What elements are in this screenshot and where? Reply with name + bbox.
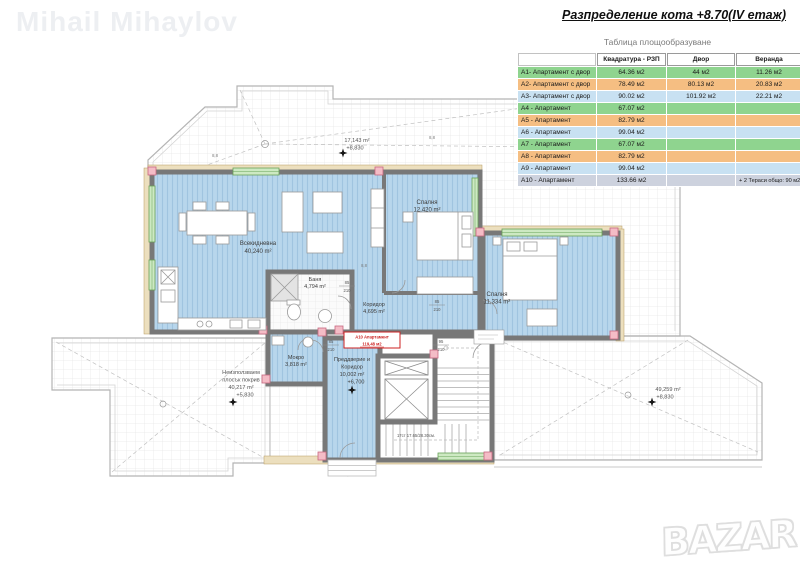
table-row: A6 - Апартамент 99.04 м2 bbox=[518, 127, 800, 138]
detail-stamp bbox=[474, 330, 504, 344]
table-row: A9 - Апартамент 99.04 м2 bbox=[518, 163, 800, 174]
rzp-value: 99.04 м2 bbox=[597, 127, 666, 138]
veranda-value bbox=[736, 103, 800, 114]
elevator-shaft bbox=[378, 356, 435, 422]
door-height: 210 bbox=[344, 288, 352, 293]
dvor-value bbox=[667, 127, 735, 138]
dvor-value: 101.92 м2 bbox=[667, 91, 735, 102]
rzp-value: 67.07 м2 bbox=[597, 103, 666, 114]
dvor-value: 80.13 м2 bbox=[667, 79, 735, 90]
bath-name: Баня bbox=[309, 277, 322, 283]
veranda-value: 22.21 м2 bbox=[736, 91, 800, 102]
top-terrace-level: +8,830 bbox=[346, 146, 363, 152]
dvor-value bbox=[667, 103, 735, 114]
wardrobe bbox=[371, 189, 384, 247]
section-mark: 8,8 bbox=[361, 263, 367, 268]
author-watermark: Mihail Mihaylov bbox=[16, 6, 238, 38]
living-area: 40,240 m² bbox=[244, 249, 271, 255]
door-width: 85 bbox=[435, 299, 440, 304]
rzp-value: 133.66 м2 bbox=[597, 175, 666, 186]
left-terrace-line2: плосък покрив bbox=[222, 378, 260, 384]
bedroom1-area: 12,420 m² bbox=[413, 208, 440, 214]
table-row: A4 - Апартамент 67.07 м2 bbox=[518, 103, 800, 114]
stamp-line2: 119,48 м2 bbox=[362, 342, 382, 347]
door-height: 210 bbox=[438, 347, 446, 352]
hall-level: +6,700 bbox=[348, 380, 365, 386]
rzp-value: 82.79 м2 bbox=[597, 151, 666, 162]
sofa bbox=[282, 192, 303, 232]
apartment-a10-stamp: А10 Апартамент 119,48 м2 bbox=[344, 332, 400, 348]
table-row: A8 - Апартамент 82.79 м2 bbox=[518, 151, 800, 162]
wardrobe bbox=[417, 277, 473, 294]
table-header-row: Квадратура - РЗП Двор Веранда bbox=[518, 53, 800, 66]
mokro-name: Мокро bbox=[288, 355, 304, 361]
door-width: 85 bbox=[329, 339, 334, 344]
sofa bbox=[313, 192, 342, 213]
veranda-value bbox=[736, 115, 800, 126]
apartment-label: A10 - Апартамент bbox=[518, 175, 596, 186]
apartment-label: A2- Апартамент с двор bbox=[518, 79, 596, 90]
bazar-logo: BAZAR bbox=[661, 511, 796, 564]
door-height: 210 bbox=[434, 307, 442, 312]
door-height: 210 bbox=[328, 347, 336, 352]
floor-plan-page: Mihail Mihaylov Разпределение кота +8.70… bbox=[0, 0, 800, 566]
rzp-value: 90.02 м2 bbox=[597, 91, 666, 102]
bedroom1-name: Спалня bbox=[417, 200, 438, 206]
entrance-stoop bbox=[328, 460, 376, 476]
veranda-value: 20.83 м2 bbox=[736, 79, 800, 90]
dvor-value bbox=[667, 151, 735, 162]
dvor-value: 44 м2 bbox=[667, 67, 735, 78]
sink bbox=[319, 310, 332, 323]
veranda-value bbox=[736, 127, 800, 138]
living-name: Всекидневна bbox=[240, 241, 277, 247]
table-caption: Таблица площообразуване bbox=[517, 37, 798, 47]
rzp-value: 78.49 м2 bbox=[597, 79, 666, 90]
hall-name2: Коридор bbox=[341, 365, 363, 371]
apartment-label: A6 - Апартамент bbox=[518, 127, 596, 138]
bath-area: 4,794 m² bbox=[304, 284, 326, 290]
table-row: A7 - Апартамент 67.07 м2 bbox=[518, 139, 800, 150]
rzp-value: 67.07 м2 bbox=[597, 139, 666, 150]
dvor-value bbox=[667, 139, 735, 150]
apartment-label: A4 - Апартамент bbox=[518, 103, 596, 114]
stairs-note: 17ст 17.65/28.30см. bbox=[397, 433, 435, 438]
rzp-value: 82.79 м2 bbox=[597, 115, 666, 126]
table-row: A5 - Апартамент 82.79 м2 bbox=[518, 115, 800, 126]
table-row: A1- Апартамент с двор 64.36 м2 44 м2 11.… bbox=[518, 67, 800, 78]
mokro-area: 3,818 m² bbox=[285, 362, 307, 368]
apartment-label: A5 - Апартамент bbox=[518, 115, 596, 126]
right-terrace-area: 49,259 m² bbox=[655, 387, 680, 393]
top-terrace-area: 17,143 m² bbox=[344, 138, 369, 144]
left-terrace-area: 40,217 m² bbox=[228, 385, 253, 391]
table-row: A3- Апартамент с двор 90.02 м2 101.92 м2… bbox=[518, 91, 800, 102]
header-dvor: Двор bbox=[667, 53, 735, 66]
door-width: 95 bbox=[439, 339, 444, 344]
hall-name1: Преддверие и bbox=[334, 357, 370, 363]
rzp-value: 99.04 м2 bbox=[597, 163, 666, 174]
page-title: Разпределение кота +8.70(IV етаж) bbox=[548, 8, 800, 22]
header-rzp: Квадратура - РЗП bbox=[597, 53, 666, 66]
apartment-label: A9 - Апартамент bbox=[518, 163, 596, 174]
stamp-line1: А10 Апартамент bbox=[355, 335, 389, 340]
right-terrace-level: +8,830 bbox=[656, 395, 673, 401]
header-veranda: Веранда bbox=[736, 53, 800, 66]
rzp-value: 64.36 м2 bbox=[597, 67, 666, 78]
toilet bbox=[288, 304, 301, 320]
veranda-value: 11.26 м2 bbox=[736, 67, 800, 78]
apartment-label: A8 - Апартамент bbox=[518, 151, 596, 162]
right-roof-terrace bbox=[494, 336, 762, 467]
veranda-value bbox=[736, 151, 800, 162]
hall-area: 10,002 m² bbox=[340, 372, 365, 378]
dvor-value bbox=[667, 163, 735, 174]
dvor-value bbox=[667, 115, 735, 126]
veranda-value bbox=[736, 139, 800, 150]
table-row: A2- Апартамент с двор 78.49 м2 80.13 м2 … bbox=[518, 79, 800, 90]
veranda-value bbox=[736, 163, 800, 174]
dining-table bbox=[187, 211, 247, 235]
apartment-label: A1- Апартамент с двор bbox=[518, 67, 596, 78]
left-terrace-line1: Неизползваем bbox=[222, 370, 260, 376]
apartment-label: A3- Апартамент с двор bbox=[518, 91, 596, 102]
section-mark: 8,8 bbox=[212, 153, 218, 158]
apartment-label: A7 - Апартамент bbox=[518, 139, 596, 150]
corridor-name: Коридор bbox=[363, 302, 385, 308]
header-blank bbox=[518, 53, 596, 66]
bedroom2-area: 11,334 m² bbox=[484, 300, 511, 306]
bedroom2-name: Спалня bbox=[487, 292, 508, 298]
boiler bbox=[303, 337, 313, 347]
section-mark: 8,8 bbox=[429, 135, 435, 140]
dvor-value bbox=[667, 175, 735, 186]
veranda-note: + 2 Тераси общо: 90 м2 bbox=[736, 175, 800, 186]
area-table: Квадратура - РЗП Двор Веранда A1- Апарта… bbox=[517, 52, 800, 187]
corridor-area: 4,695 m² bbox=[363, 309, 385, 315]
left-terrace-level: +5,830 bbox=[236, 393, 253, 399]
coffee-table bbox=[307, 232, 343, 253]
door-width: 85 bbox=[345, 280, 350, 285]
table-row: A10 - Апартамент 133.66 м2 + 2 Тераси об… bbox=[518, 175, 800, 186]
dresser bbox=[527, 309, 557, 326]
